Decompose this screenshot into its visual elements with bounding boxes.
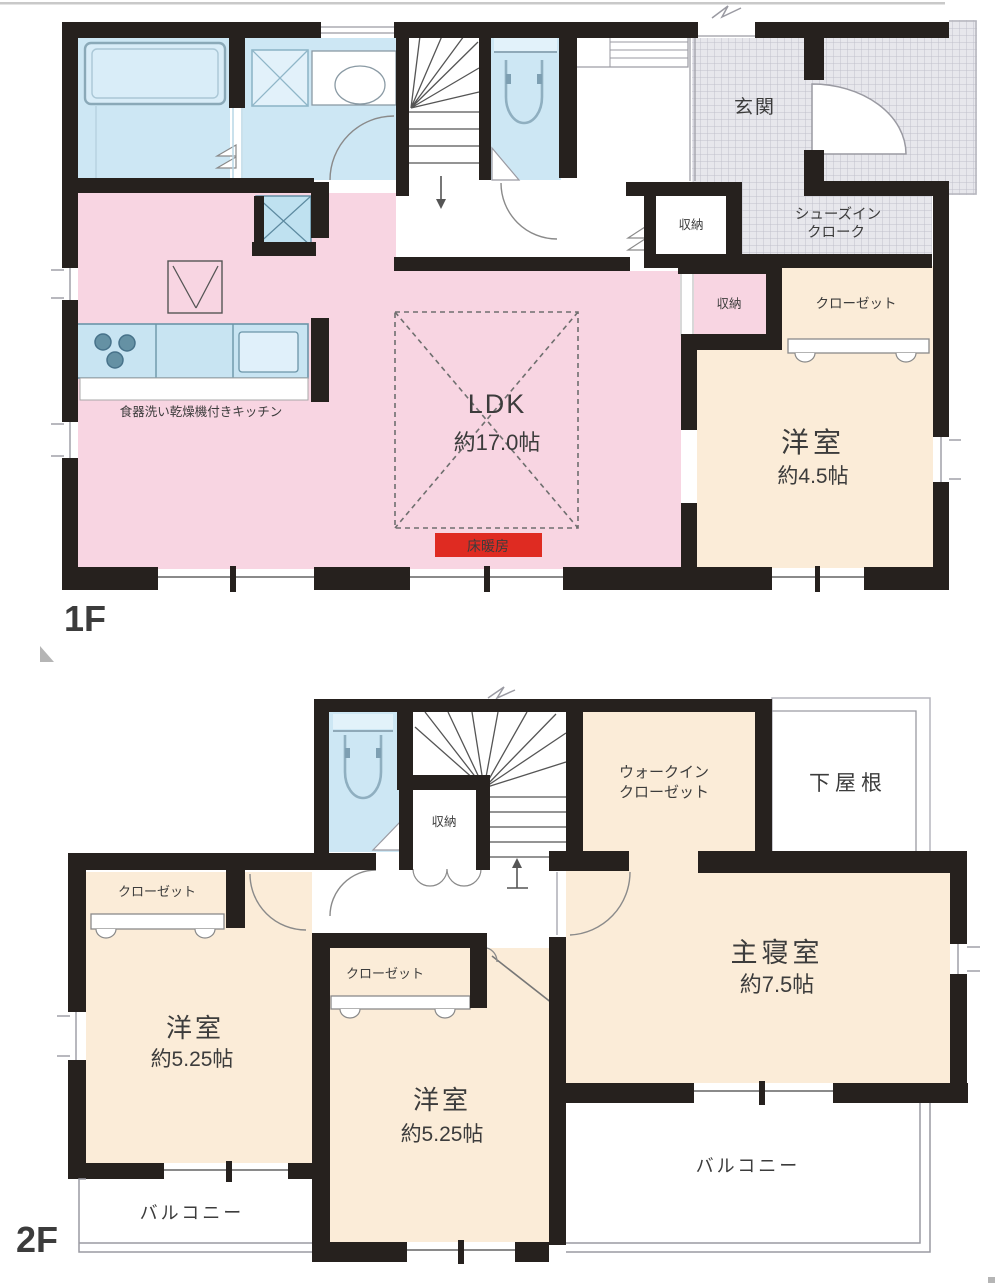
svg-text:主寝室: 主寝室: [731, 938, 824, 968]
svg-text:クローゼット: クローゼット: [346, 966, 424, 981]
svg-text:LDK: LDK: [468, 389, 527, 419]
svg-text:シューズイン: シューズイン: [795, 206, 881, 223]
svg-text:クローゼット: クローゼット: [118, 884, 196, 899]
svg-text:約5.25帖: 約5.25帖: [151, 1048, 234, 1071]
svg-text:下屋根: 下屋根: [809, 772, 887, 795]
svg-text:ウォークイン: ウォークイン: [619, 764, 709, 781]
svg-text:クローゼット: クローゼット: [619, 784, 709, 801]
svg-text:約4.5帖: 約4.5帖: [777, 465, 848, 488]
svg-text:玄関: 玄関: [734, 96, 776, 118]
svg-text:洋室: 洋室: [413, 1085, 471, 1115]
svg-text:収納: 収納: [431, 815, 456, 829]
svg-text:洋室: 洋室: [166, 1013, 224, 1043]
svg-text:食器洗い乾燥機付きキッチン: 食器洗い乾燥機付きキッチン: [120, 404, 283, 419]
svg-text:床暖房: 床暖房: [467, 538, 509, 554]
svg-text:収納: 収納: [716, 297, 741, 311]
svg-text:約5.25帖: 約5.25帖: [401, 1123, 484, 1146]
svg-text:クローク: クローク: [807, 224, 865, 241]
svg-text:クローゼット: クローゼット: [816, 296, 897, 311]
svg-text:2F: 2F: [16, 1219, 58, 1260]
svg-text:バルコニー: バルコニー: [140, 1203, 245, 1223]
svg-text:約17.0帖: 約17.0帖: [454, 430, 541, 455]
svg-text:1F: 1F: [64, 598, 106, 639]
svg-text:約7.5帖: 約7.5帖: [740, 972, 815, 997]
svg-text:洋室: 洋室: [781, 427, 845, 458]
svg-text:収納: 収納: [678, 218, 703, 232]
svg-text:バルコニー: バルコニー: [696, 1156, 801, 1176]
